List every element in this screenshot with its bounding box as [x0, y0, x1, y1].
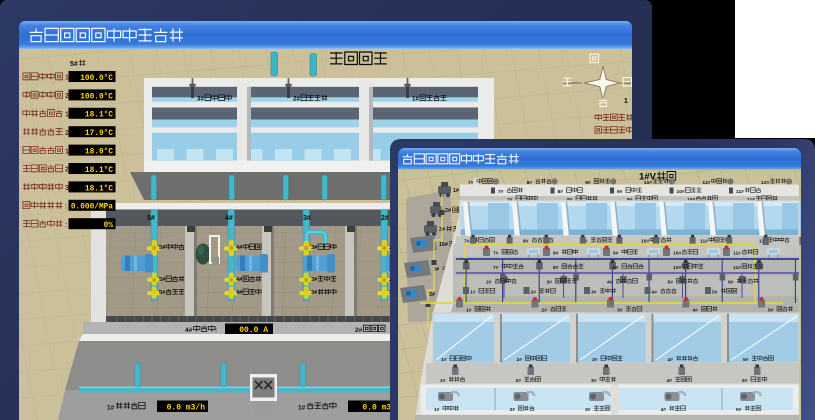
svg-text:5#: 5#	[742, 378, 748, 384]
svg-text:100.0°C: 100.0°C	[80, 74, 113, 83]
svg-text:18.0°C: 18.0°C	[85, 148, 113, 157]
svg-text:5#: 5#	[70, 61, 78, 68]
svg-text:0.000/MPa: 0.000/MPa	[71, 204, 113, 212]
svg-text:4#: 4#	[607, 280, 613, 286]
svg-text:1: 1	[624, 98, 628, 105]
svg-text:5#: 5#	[159, 290, 166, 296]
svg-text:1#: 1#	[298, 405, 306, 412]
svg-text:10#: 10#	[673, 251, 681, 257]
svg-text:5#: 5#	[712, 290, 718, 296]
svg-text:16#: 16#	[439, 242, 448, 248]
svg-text:2#: 2#	[355, 327, 363, 334]
svg-text:18.1°C: 18.1°C	[85, 184, 113, 193]
svg-text:1#: 1#	[470, 290, 476, 296]
svg-text:4#: 4#	[185, 327, 193, 334]
svg-text:3#: 3#	[197, 96, 204, 103]
svg-text:10#: 10#	[673, 265, 681, 271]
svg-text:00.0 A: 00.0 A	[239, 326, 268, 335]
svg-text:17.9°C: 17.9°C	[85, 129, 113, 138]
svg-text:4#: 4#	[236, 277, 243, 283]
svg-text:18.1°C: 18.1°C	[85, 111, 113, 120]
svg-text:3#: 3#	[591, 290, 597, 296]
svg-text:3#: 3#	[303, 215, 311, 222]
svg-text:9#: 9#	[613, 251, 619, 257]
svg-text:2#: 2#	[531, 290, 537, 296]
svg-text:3#: 3#	[311, 290, 318, 296]
svg-text:5#: 5#	[159, 245, 166, 251]
svg-text:2#: 2#	[510, 407, 516, 413]
svg-text:4#: 4#	[668, 357, 674, 363]
svg-text:3#: 3#	[547, 280, 553, 286]
svg-text:5#: 5#	[147, 215, 155, 222]
svg-text:5#: 5#	[159, 277, 166, 283]
svg-text:11#: 11#	[733, 251, 741, 257]
svg-text:4#: 4#	[667, 378, 673, 384]
svg-text:4#: 4#	[225, 215, 233, 222]
svg-text:11#: 11#	[733, 265, 741, 271]
svg-text:18.1°C: 18.1°C	[85, 166, 113, 175]
svg-text:8#: 8#	[558, 189, 564, 195]
svg-text:1#: 1#	[412, 96, 419, 103]
svg-text:10#: 10#	[677, 189, 685, 195]
svg-text:2#: 2#	[516, 378, 522, 384]
svg-text:1#: 1#	[434, 407, 440, 413]
svg-text:1#: 1#	[441, 357, 447, 363]
svg-text:3#: 3#	[311, 277, 318, 283]
svg-text:1#: 1#	[107, 405, 115, 412]
svg-text:9#: 9#	[617, 189, 623, 195]
svg-text:4#: 4#	[661, 407, 667, 413]
svg-text:5#: 5#	[668, 280, 674, 286]
svg-text:2#: 2#	[293, 96, 300, 103]
svg-text:3#: 3#	[311, 245, 318, 251]
svg-text:2#: 2#	[381, 215, 389, 222]
svg-text:7#: 7#	[493, 251, 499, 257]
svg-text:7#: 7#	[498, 189, 504, 195]
svg-text:6#: 6#	[728, 280, 734, 286]
svg-text:7#: 7#	[493, 265, 499, 271]
svg-text:4#: 4#	[652, 290, 658, 296]
svg-text:0.0 m3/h: 0.0 m3/h	[167, 404, 206, 413]
svg-text:3#: 3#	[592, 357, 598, 363]
svg-text:3#: 3#	[585, 407, 591, 413]
svg-text:5#: 5#	[736, 407, 742, 413]
svg-text:1#: 1#	[440, 378, 446, 384]
svg-text:2#: 2#	[486, 280, 492, 286]
svg-text:11#: 11#	[736, 189, 744, 195]
svg-text:2#: 2#	[445, 208, 451, 214]
svg-text:5#: 5#	[743, 357, 749, 363]
svg-text:3#: 3#	[591, 378, 597, 384]
svg-text:0%: 0%	[104, 222, 114, 230]
svg-text:4#: 4#	[236, 245, 243, 251]
svg-text::: :	[215, 327, 217, 334]
svg-text:2#: 2#	[517, 357, 523, 363]
svg-text:4#: 4#	[236, 290, 243, 296]
svg-text::: :	[65, 222, 67, 229]
svg-text::: :	[65, 204, 67, 211]
svg-text:1#: 1#	[453, 188, 459, 194]
svg-text:9#: 9#	[613, 265, 619, 271]
svg-text:8#: 8#	[553, 265, 559, 271]
svg-text:3#: 3#	[429, 292, 435, 298]
svg-text:8#: 8#	[553, 251, 559, 257]
svg-text:100.0°C: 100.0°C	[80, 92, 113, 101]
